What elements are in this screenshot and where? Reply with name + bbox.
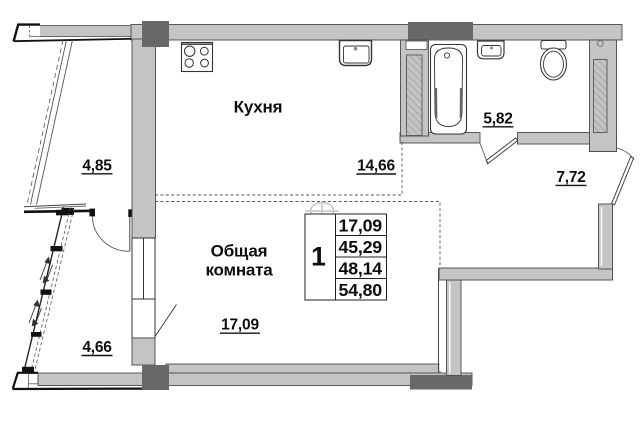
svg-text:17,09: 17,09 xyxy=(221,317,259,334)
svg-text:17,09: 17,09 xyxy=(339,216,383,236)
svg-text:45,29: 45,29 xyxy=(339,237,383,257)
svg-text:14,66: 14,66 xyxy=(357,158,395,175)
svg-text:5,82: 5,82 xyxy=(483,110,512,127)
svg-text:комната: комната xyxy=(205,261,273,280)
svg-text:7,72: 7,72 xyxy=(556,169,585,186)
svg-text:4,66: 4,66 xyxy=(82,339,112,356)
svg-text:Кухня: Кухня xyxy=(234,98,283,117)
svg-text:54,80: 54,80 xyxy=(339,280,383,300)
svg-text:Общая: Общая xyxy=(211,242,268,261)
svg-text:48,14: 48,14 xyxy=(339,259,383,279)
svg-text:4,85: 4,85 xyxy=(82,157,112,174)
svg-text:1: 1 xyxy=(311,242,326,272)
